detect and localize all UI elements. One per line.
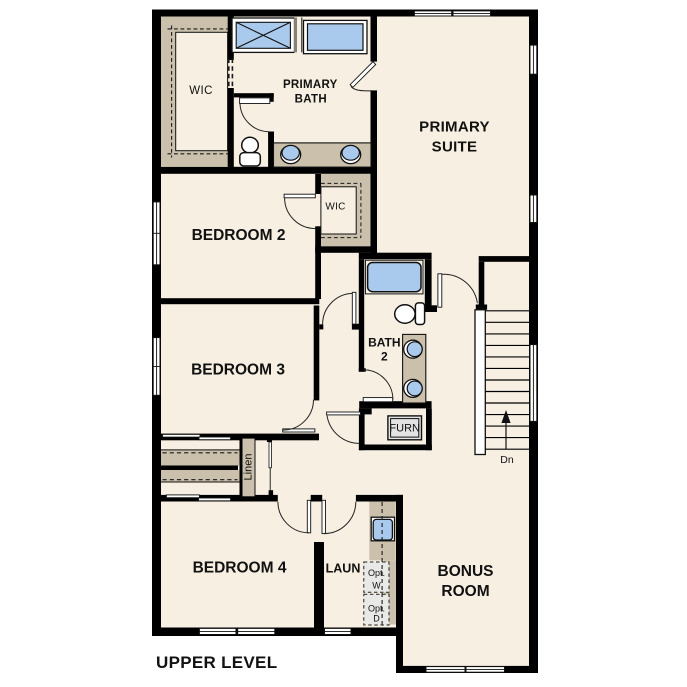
svg-text:ROOM: ROOM xyxy=(441,583,489,600)
svg-text:FURN: FURN xyxy=(389,423,420,435)
svg-text:Dn: Dn xyxy=(500,454,514,466)
svg-text:BEDROOM 4: BEDROOM 4 xyxy=(193,560,287,577)
svg-text:2: 2 xyxy=(381,349,388,363)
svg-text:W: W xyxy=(372,581,381,591)
svg-text:BEDROOM 3: BEDROOM 3 xyxy=(191,362,285,379)
svg-text:D: D xyxy=(373,613,380,623)
svg-text:PRIMARY: PRIMARY xyxy=(283,79,338,91)
svg-text:WIC: WIC xyxy=(325,201,345,212)
svg-text:Linen: Linen xyxy=(243,454,255,481)
svg-text:BATH: BATH xyxy=(368,335,400,349)
svg-text:SUITE: SUITE xyxy=(432,139,478,156)
svg-text:Opt.: Opt. xyxy=(368,604,385,614)
svg-text:LAUN: LAUN xyxy=(326,562,361,576)
svg-text:Opt.: Opt. xyxy=(368,568,385,578)
svg-text:BATH: BATH xyxy=(295,94,327,106)
svg-text:BONUS: BONUS xyxy=(438,563,494,580)
svg-text:WIC: WIC xyxy=(189,85,213,97)
svg-text:PRIMARY: PRIMARY xyxy=(419,118,490,135)
svg-text:UPPER LEVEL: UPPER LEVEL xyxy=(156,653,277,672)
svg-text:BEDROOM 2: BEDROOM 2 xyxy=(192,227,286,244)
